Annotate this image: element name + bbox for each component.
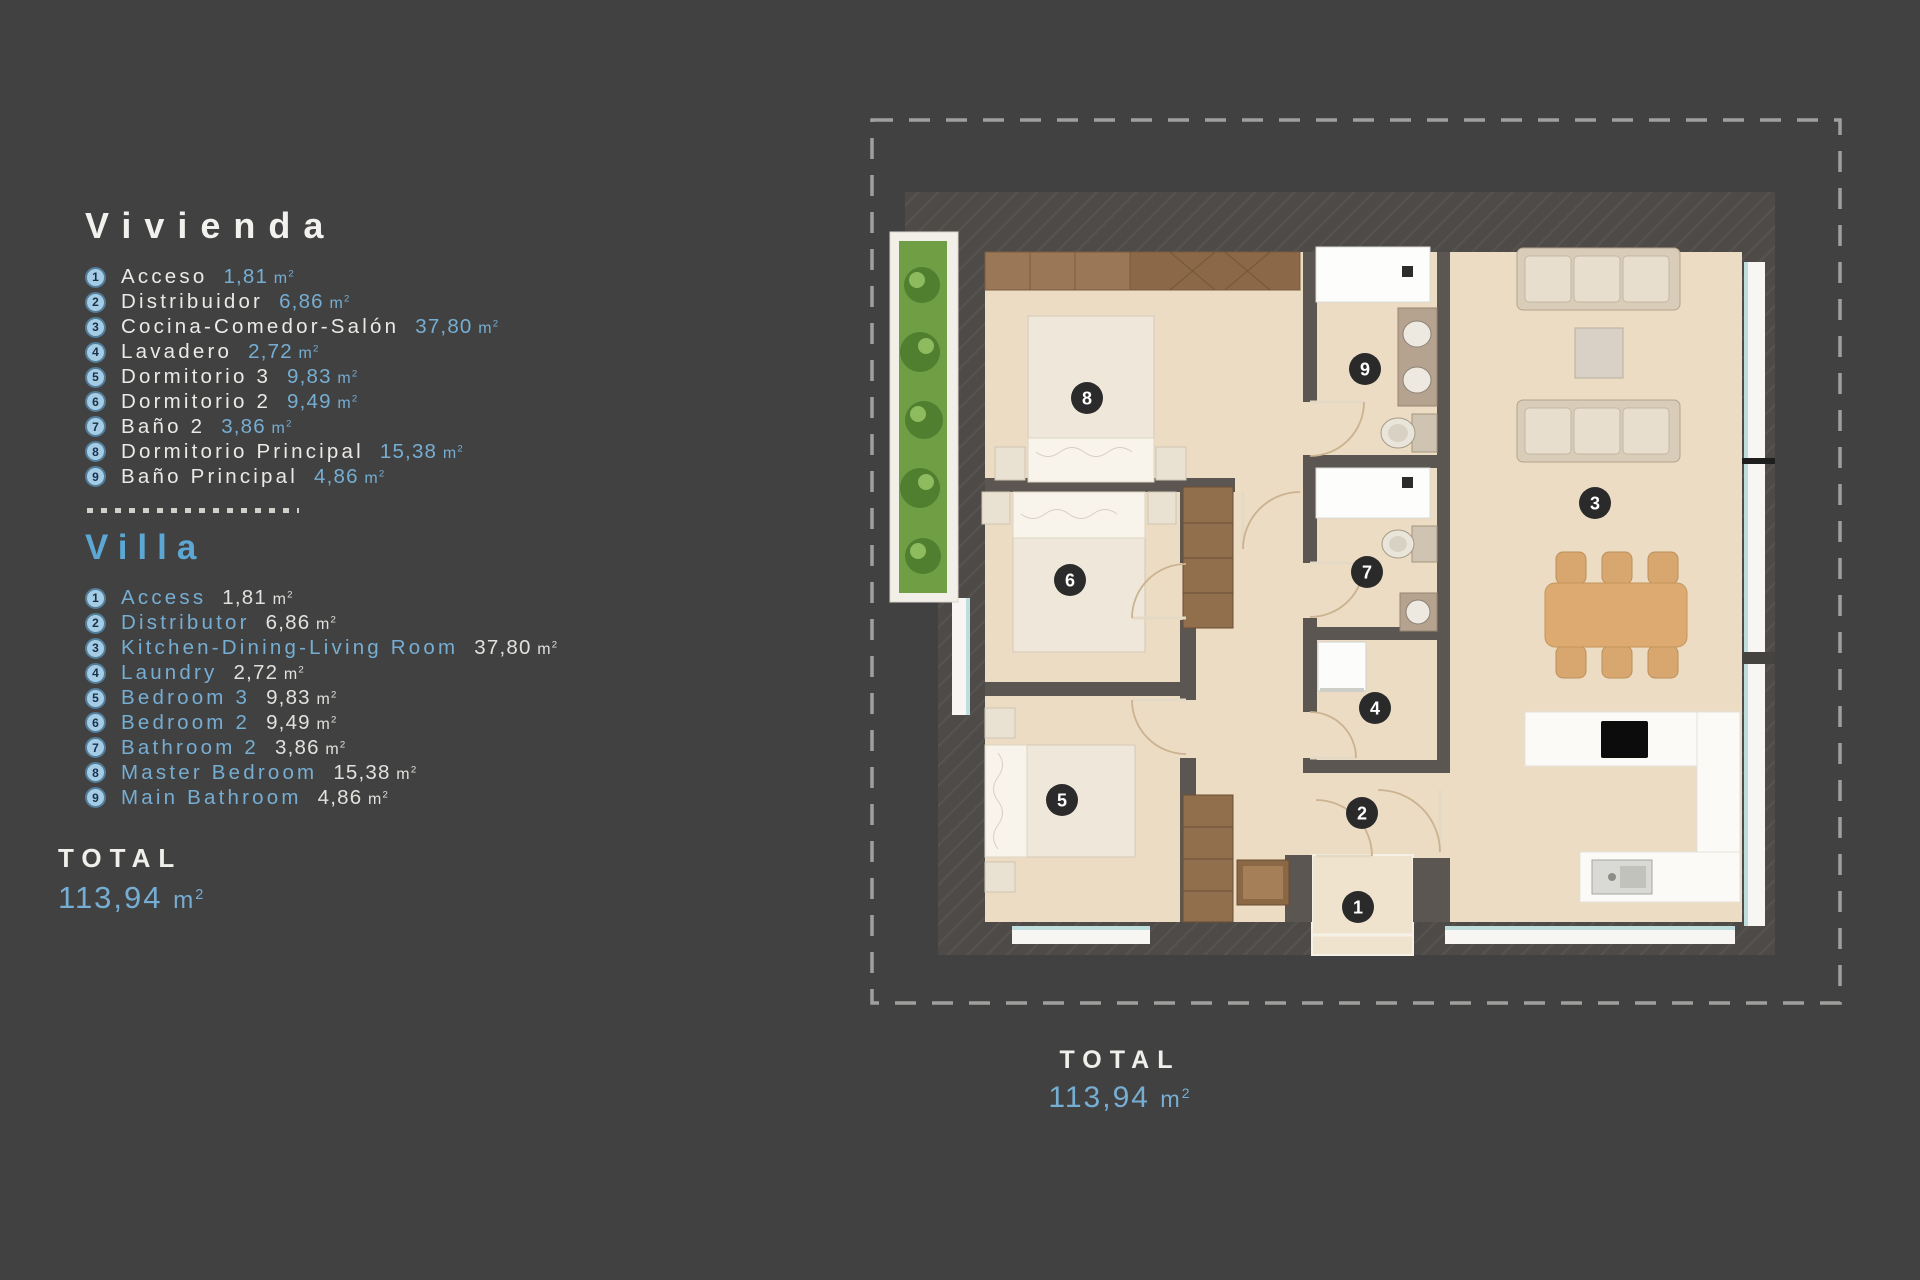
plan-marker-number: 1 xyxy=(1353,898,1363,918)
plan-total: TOTAL 113,94 m2 xyxy=(965,1046,1275,1115)
plan-marker-number: 7 xyxy=(1362,563,1372,583)
plan-marker-number: 9 xyxy=(1360,360,1370,380)
plan-total-number: 113,94 xyxy=(1048,1081,1150,1114)
plan-marker-number: 3 xyxy=(1590,494,1600,514)
plan-total-value: 113,94 m2 xyxy=(965,1081,1275,1115)
sink xyxy=(1403,321,1431,347)
coffee-table xyxy=(1575,328,1623,378)
area-unit-sup: 2 xyxy=(1182,1085,1192,1101)
plan-marker-number: 6 xyxy=(1065,571,1075,591)
plan-marker-number: 4 xyxy=(1370,699,1380,719)
planter-garden xyxy=(890,232,958,602)
cooktop xyxy=(1601,721,1648,758)
plan-marker-number: 2 xyxy=(1357,804,1367,824)
sink xyxy=(1403,367,1431,393)
shower xyxy=(1316,468,1430,518)
sink xyxy=(1406,600,1430,624)
washing-machine xyxy=(1318,642,1366,691)
plan-marker-number: 5 xyxy=(1057,791,1067,811)
area-unit: m xyxy=(1160,1086,1182,1112)
dining-table xyxy=(1545,552,1687,678)
floor-plan: 123456789 xyxy=(0,0,1920,1280)
building: 123456789 xyxy=(890,192,1775,955)
plan-total-label: TOTAL xyxy=(965,1046,1275,1075)
plan-marker-number: 8 xyxy=(1082,389,1092,409)
